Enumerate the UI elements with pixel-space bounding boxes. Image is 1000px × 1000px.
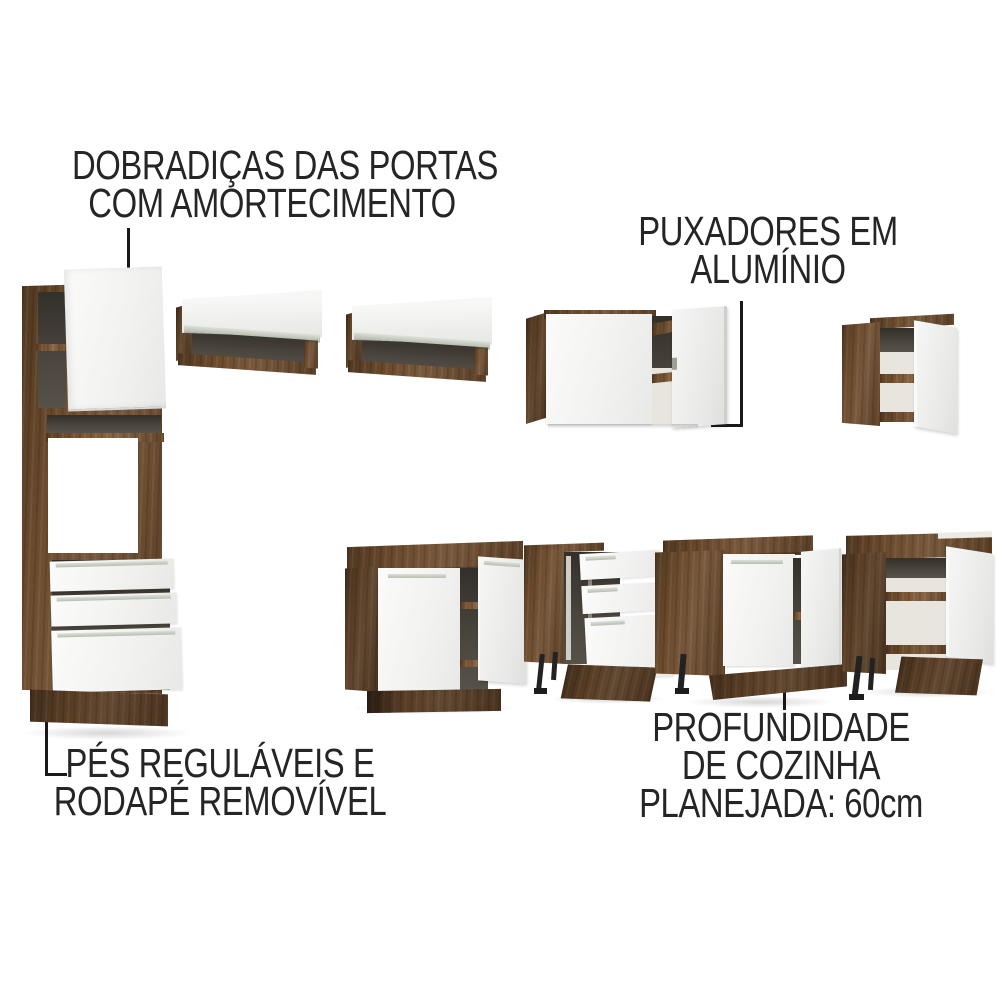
- aluminum-door-handle: [484, 561, 520, 568]
- adjustable-foot: [551, 652, 558, 680]
- wall-cabinet-flip-1: [176, 290, 324, 376]
- drawer-box-side: [566, 556, 571, 660]
- aluminum-door-handle: [672, 358, 677, 370]
- drawer-handle: [586, 555, 616, 561]
- tower-niche-opening: [47, 415, 161, 433]
- open-door: [478, 556, 526, 683]
- open-door: [914, 320, 957, 434]
- side-panel: [526, 312, 548, 424]
- handles-label: PUXADORES EM ALUMÍNIO: [608, 212, 928, 288]
- wall-cabinet-single-door: [842, 316, 956, 436]
- base-cabinet-single-door: [842, 530, 994, 702]
- hinges-label-line1: DOBRADIÇAS DAS PORTAS: [72, 146, 472, 184]
- open-drawer-2: [581, 582, 664, 614]
- tower-plinth: [30, 690, 168, 727]
- plinth: [367, 689, 501, 713]
- aluminum-door-handle: [731, 560, 783, 564]
- tall-oven-cabinet: [22, 268, 180, 742]
- base-cabinet-two-door: [345, 540, 527, 712]
- interior-shade: [886, 558, 948, 578]
- adjustable-foot-base: [675, 688, 689, 694]
- floor-shadow: [685, 696, 835, 708]
- depth-label-line3: PLANEJADA: 60cm: [605, 784, 957, 822]
- handles-label-line2: ALUMÍNIO: [608, 250, 928, 288]
- open-door: [801, 548, 841, 667]
- tower-drawer-2: [51, 592, 178, 626]
- tower-drawer-1: [50, 558, 175, 591]
- base-cabinet-corner: [655, 536, 847, 714]
- open-door: [672, 306, 727, 428]
- feet-label-line1: PÉS REGULÁVEIS E: [44, 744, 396, 782]
- removable-plinth: [561, 664, 658, 701]
- drawer-handle: [57, 595, 171, 602]
- drawer-handle: [56, 561, 168, 568]
- side-panel: [345, 566, 379, 692]
- adjustable-foot-base: [534, 688, 547, 694]
- tower-drawer-3: [51, 627, 183, 692]
- bottom-panel: [886, 645, 950, 654]
- cabinet-interior: [886, 558, 948, 670]
- side-panel: [655, 550, 725, 676]
- side-panel: [524, 548, 566, 664]
- adjustable-foot-base: [849, 694, 864, 700]
- removable-plinth: [895, 657, 983, 696]
- closed-door: [546, 314, 652, 424]
- removable-plinth: [709, 664, 847, 700]
- wall-cabinet-flip-2: [346, 297, 494, 383]
- base-cabinet-drawers: [524, 544, 666, 704]
- feet-leader-line-horizontal: [45, 773, 67, 776]
- drawer-handle: [587, 587, 617, 593]
- side-panel: [842, 322, 880, 426]
- hinges-label: DOBRADIÇAS DAS PORTAS COM AMORTECIMENTO: [72, 146, 472, 222]
- hinges-label-line2: COM AMORTECIMENTO: [72, 184, 472, 222]
- feet-label-line2: RODAPÉ REMOVÍVEL: [44, 782, 396, 820]
- side-panel: [842, 552, 886, 674]
- depth-label-line2: DE COZINHA: [605, 746, 957, 784]
- wall-cabinet-two-door: [526, 300, 724, 432]
- floor-shadow: [22, 726, 192, 740]
- open-door: [946, 546, 993, 663]
- drawer-handle: [591, 620, 625, 626]
- handles-label-line1: PUXADORES EM: [608, 212, 928, 250]
- drawer-handle: [57, 630, 175, 637]
- open-drawer-1: [579, 550, 660, 580]
- shelf: [886, 592, 950, 601]
- depth-label: PROFUNDIDADE DE COZINHA PLANEJADA: 60cm: [605, 708, 957, 822]
- handles-leader-line-vertical: [740, 301, 743, 427]
- tower-upper-shelf: [36, 344, 68, 351]
- aluminum-door-handle: [388, 574, 446, 578]
- closed-door: [378, 568, 460, 692]
- feet-label: PÉS REGULÁVEIS E RODAPÉ REMOVÍVEL: [44, 744, 396, 820]
- closed-door: [723, 554, 795, 666]
- kitchen-cabinet-set-image: DOBRADIÇAS DAS PORTAS COM AMORTECIMENTO …: [0, 0, 1000, 1000]
- bottom-shade: [548, 424, 698, 429]
- tower-door: [64, 266, 166, 411]
- tower-oven-cavity: [48, 438, 138, 553]
